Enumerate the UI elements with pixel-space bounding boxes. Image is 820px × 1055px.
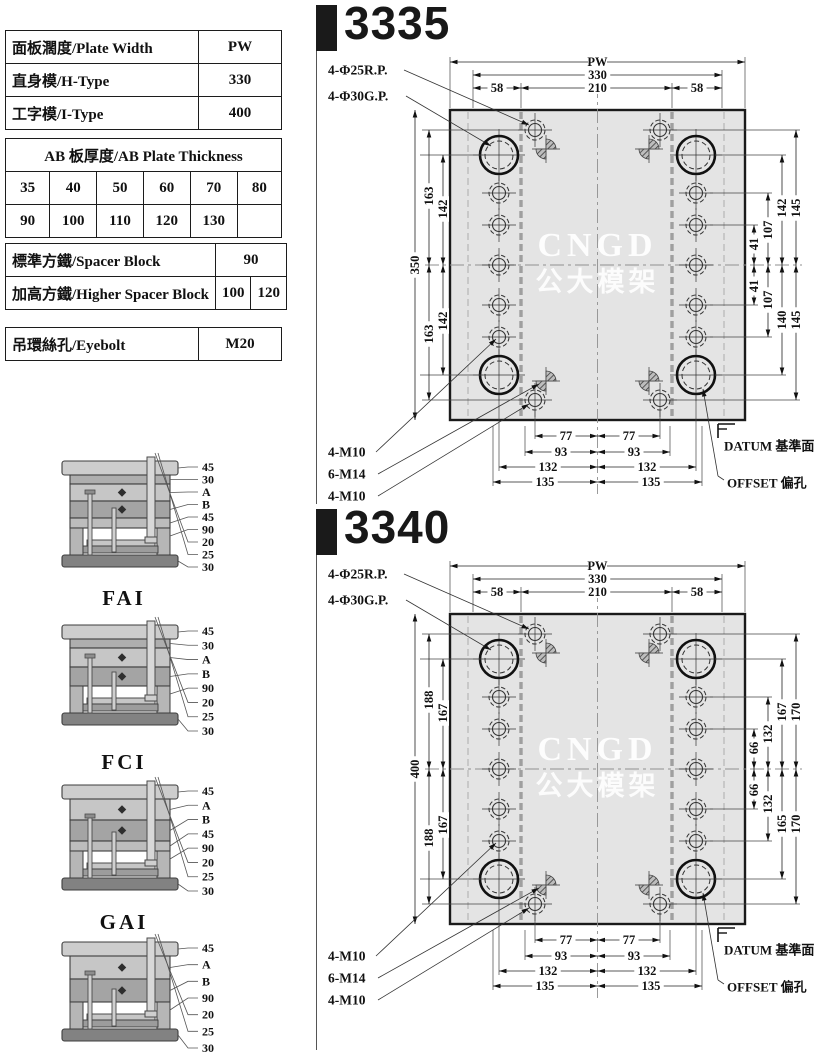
dim-label: 77: [623, 933, 636, 947]
dim-label: 132: [539, 460, 558, 474]
dim-label: 140: [775, 311, 789, 330]
spacer-table: 標準方鐵/Spacer Block90加高方鐵/Higher Spacer Bl…: [5, 243, 287, 310]
heading-bar-icon: [316, 5, 337, 51]
dim-label: 135: [536, 475, 555, 489]
dim-label: 163: [422, 187, 436, 206]
dim-label: 58: [691, 585, 704, 599]
dim-label: PW: [587, 559, 608, 573]
table-cell: 70: [190, 172, 237, 205]
side-view-dim-label: 30: [202, 638, 214, 652]
dim-label: 77: [560, 429, 573, 443]
brand-watermark-cn: 公大模架: [536, 267, 660, 297]
dim-label: 330: [588, 572, 607, 586]
dim-label: 167: [436, 704, 450, 723]
dim-label: 330: [588, 68, 607, 82]
side-view-dim-label: 25: [202, 870, 214, 884]
side-view-dim-label: B: [202, 974, 210, 988]
dim-label: 132: [761, 725, 775, 744]
dim-label: 66: [747, 742, 761, 755]
side-view-name: FCI: [101, 750, 146, 774]
table-cell: PW: [199, 31, 282, 64]
side-view-dim-label: 20: [202, 855, 214, 869]
brand-watermark: CNGD: [537, 731, 657, 768]
callout-m10: 4-M10: [328, 949, 366, 964]
callout-m10: 4-M10: [328, 993, 366, 1008]
callout-guide-pin: 4-Φ30G.P.: [328, 593, 388, 608]
dim-label: 93: [555, 445, 568, 459]
dim-label: 135: [642, 475, 661, 489]
side-view-FAI: 4530AB4590202530FAI: [52, 453, 252, 615]
callout-guide-pin: 4-Φ30G.P.: [328, 89, 388, 104]
table-cell: 120: [143, 205, 190, 238]
dim-label: 167: [775, 703, 789, 722]
dim-label: 145: [789, 199, 803, 218]
dim-label: 142: [436, 312, 450, 331]
side-view-dim-label: A: [202, 798, 211, 812]
table-cell: 120: [251, 277, 287, 310]
side-view-dim-label: 30: [202, 1041, 214, 1055]
table-cell: 90: [6, 205, 50, 238]
datum-symbol-icon: [718, 928, 735, 942]
section-divider-line-2: [316, 510, 317, 1050]
eyebolt-table: 吊環絲孔/EyeboltM20: [5, 327, 282, 361]
side-view-dim-label: 20: [202, 695, 214, 709]
brand-watermark-cn: 公大模架: [536, 771, 660, 801]
side-view-dim-label: 90: [202, 681, 214, 695]
dim-label: 170: [789, 703, 803, 722]
side-view-FCI: 4530AB90202530FCI: [52, 617, 252, 779]
dim-label: 132: [638, 964, 657, 978]
table-cell: M20: [199, 328, 282, 361]
brand-watermark: CNGD: [537, 227, 657, 264]
table-cell: 標準方鐵/Spacer Block: [6, 244, 216, 277]
side-view-dim-label: 45: [202, 941, 214, 955]
dim-label: 132: [539, 964, 558, 978]
section-divider-line-1: [316, 6, 317, 504]
dim-label: 58: [491, 585, 504, 599]
dim-label: 77: [560, 933, 573, 947]
table-cell: 35: [6, 172, 50, 205]
side-view-GAI: 45AB4590202530GAI: [52, 777, 252, 939]
model-number: 3335: [344, 0, 450, 50]
table-cell: 110: [97, 205, 144, 238]
table-cell: 80: [237, 172, 281, 205]
callout-m10: 4-M10: [328, 489, 366, 504]
table-cell: 面板濶度/Plate Width: [6, 31, 199, 64]
side-view-dim-label: 30: [202, 560, 214, 574]
side-view-name: GAI: [100, 910, 149, 934]
callout-m14: 6-M14: [328, 971, 366, 986]
dim-label: 93: [555, 949, 568, 963]
table-cell: 130: [190, 205, 237, 238]
dim-label: 107: [761, 221, 775, 240]
mold-base-catalog-page: 面板濶度/Plate WidthPW直身模/H-Type330工字模/I-Typ…: [0, 0, 820, 1055]
dim-label: 170: [789, 815, 803, 834]
table-cell: 吊環絲孔/Eyebolt: [6, 328, 199, 361]
dim-label: 132: [638, 460, 657, 474]
plate-drawing-3335: CNGD公大模架PW330582105835016316314214241411…: [320, 48, 820, 508]
dim-label: 350: [408, 256, 422, 275]
dim-label: PW: [587, 55, 608, 69]
dim-label: 163: [422, 325, 436, 344]
dim-label: 107: [761, 291, 775, 310]
table-cell: 工字模/I-Type: [6, 97, 199, 130]
dim-label: 145: [789, 311, 803, 330]
callout-m10: 4-M10: [328, 445, 366, 460]
dim-label: 210: [588, 585, 607, 599]
side-view-GCI: 45AB90202530GCI: [52, 934, 252, 1055]
dim-label: 188: [422, 691, 436, 710]
dim-label: 135: [642, 979, 661, 993]
callout-return-pin: 4-Φ25R.P.: [328, 567, 387, 582]
heading-bar-icon: [316, 509, 337, 555]
dim-label: 142: [775, 199, 789, 218]
datum-label: DATUM 基準面: [724, 943, 814, 958]
plate-width-table: 面板濶度/Plate WidthPW直身模/H-Type330工字模/I-Typ…: [5, 30, 282, 130]
side-view-dim-label: B: [202, 813, 210, 827]
dim-label: 210: [588, 81, 607, 95]
dim-label: 167: [436, 816, 450, 835]
side-view-dim-label: 45: [202, 827, 214, 841]
dim-label: 135: [536, 979, 555, 993]
dim-label: 58: [691, 81, 704, 95]
side-view-dim-label: 20: [202, 1008, 214, 1022]
table-cell: 50: [97, 172, 144, 205]
side-view-dim-label: A: [202, 653, 211, 667]
table-cell: AB 板厚度/AB Plate Thickness: [6, 139, 282, 172]
ab-thickness-table: AB 板厚度/AB Plate Thickness354050607080901…: [5, 138, 282, 238]
dim-label: 93: [628, 445, 641, 459]
table-cell: 40: [50, 172, 97, 205]
side-view-dim-label: 25: [202, 710, 214, 724]
dim-label: 165: [775, 815, 789, 834]
side-view-dim-label: 45: [202, 624, 214, 638]
datum-label: DATUM 基準面: [724, 439, 814, 454]
dim-label: 41: [747, 280, 761, 293]
model-number: 3340: [344, 500, 450, 554]
dim-label: 132: [761, 795, 775, 814]
side-view-dim-label: 25: [202, 1024, 214, 1038]
side-view-dim-label: 90: [202, 991, 214, 1005]
table-cell: 60: [143, 172, 190, 205]
side-view-dim-label: B: [202, 667, 210, 681]
side-view-dim-label: 30: [202, 724, 214, 738]
table-cell: 100: [215, 277, 251, 310]
side-view-dim-label: 45: [202, 784, 214, 798]
table-cell: 100: [50, 205, 97, 238]
callout-m14: 6-M14: [328, 467, 366, 482]
dim-label: 66: [747, 784, 761, 797]
offset-label: OFFSET 偏孔: [727, 476, 807, 491]
plate-drawing-3340: CNGD公大模架PW330582105840018818816716766661…: [320, 552, 820, 1012]
side-view-dim-label: A: [202, 958, 211, 972]
dim-label: 41: [747, 238, 761, 251]
dim-label: 77: [623, 429, 636, 443]
table-cell: 加高方鐵/Higher Spacer Block: [6, 277, 216, 310]
side-view-dim-label: 30: [202, 884, 214, 898]
table-cell: 400: [199, 97, 282, 130]
offset-label: OFFSET 偏孔: [727, 980, 807, 995]
side-view-name: FAI: [102, 586, 146, 610]
callout-return-pin: 4-Φ25R.P.: [328, 63, 387, 78]
table-cell: 90: [215, 244, 286, 277]
datum-symbol-icon: [718, 424, 735, 438]
dim-label: 188: [422, 829, 436, 848]
table-cell: [237, 205, 281, 238]
dim-label: 93: [628, 949, 641, 963]
side-view-dim-label: 90: [202, 841, 214, 855]
dim-label: 400: [408, 760, 422, 779]
dim-label: 58: [491, 81, 504, 95]
table-cell: 直身模/H-Type: [6, 64, 199, 97]
table-cell: 330: [199, 64, 282, 97]
dim-label: 142: [436, 200, 450, 219]
